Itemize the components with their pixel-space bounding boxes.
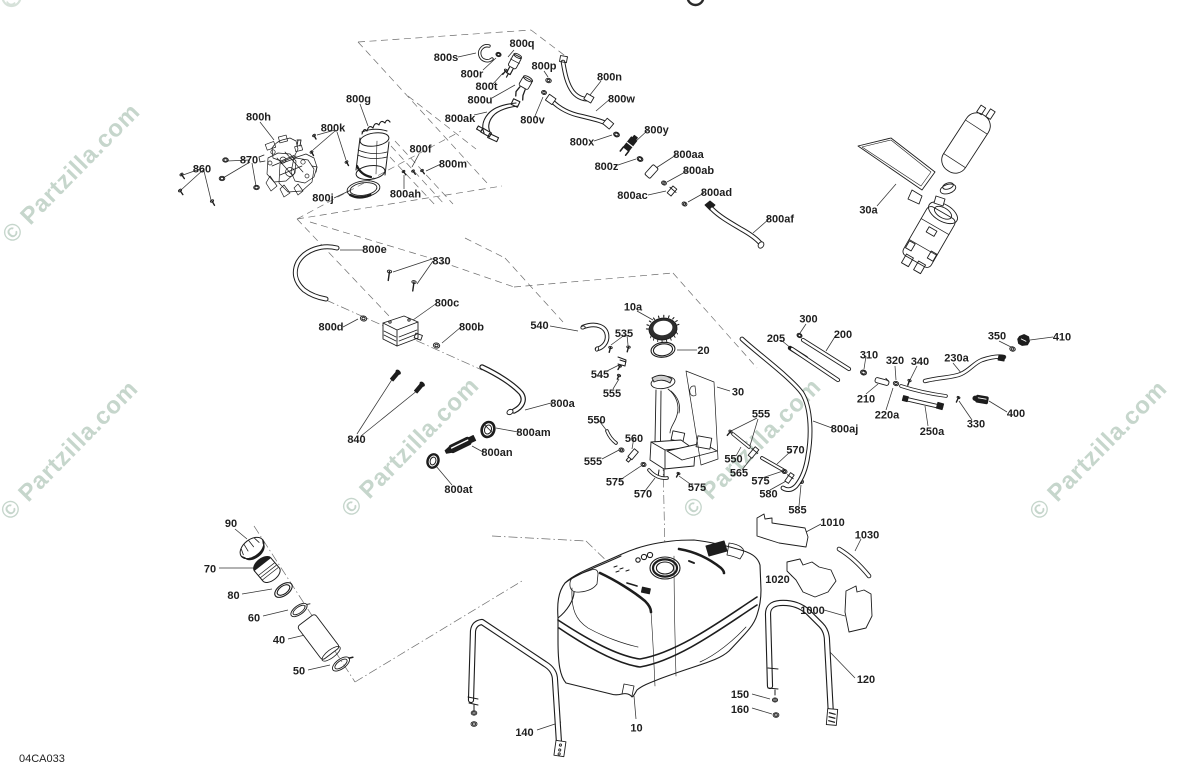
svg-text:800k: 800k bbox=[321, 123, 346, 135]
svg-text:10: 10 bbox=[630, 723, 642, 735]
svg-text:565: 565 bbox=[730, 468, 748, 480]
svg-text:800w: 800w bbox=[608, 94, 635, 106]
svg-text:800ad: 800ad bbox=[701, 187, 732, 199]
svg-text:800an: 800an bbox=[481, 447, 512, 459]
svg-text:545: 545 bbox=[591, 369, 609, 381]
svg-text:800x: 800x bbox=[570, 137, 595, 149]
svg-text:300: 300 bbox=[799, 314, 817, 326]
svg-text:160: 160 bbox=[731, 704, 749, 716]
svg-text:330: 330 bbox=[967, 419, 985, 431]
svg-text:350: 350 bbox=[988, 331, 1006, 343]
svg-text:800h: 800h bbox=[246, 112, 271, 124]
svg-text:575: 575 bbox=[606, 477, 624, 489]
svg-text:20: 20 bbox=[697, 345, 709, 357]
svg-text:120: 120 bbox=[857, 674, 875, 686]
svg-text:800v: 800v bbox=[520, 115, 545, 127]
svg-text:200: 200 bbox=[834, 329, 852, 341]
svg-text:800t: 800t bbox=[475, 81, 497, 93]
svg-text:60: 60 bbox=[248, 613, 260, 625]
svg-text:80: 80 bbox=[227, 590, 239, 602]
svg-text:150: 150 bbox=[731, 689, 749, 701]
svg-text:140: 140 bbox=[515, 727, 533, 739]
svg-text:10a: 10a bbox=[624, 302, 643, 314]
svg-text:220a: 220a bbox=[875, 410, 900, 422]
svg-text:800aj: 800aj bbox=[831, 424, 859, 436]
svg-text:800q: 800q bbox=[509, 38, 534, 50]
svg-text:04CA033: 04CA033 bbox=[19, 753, 65, 765]
svg-text:30: 30 bbox=[732, 387, 744, 399]
svg-text:870: 870 bbox=[240, 155, 258, 167]
svg-text:800f: 800f bbox=[409, 144, 431, 156]
svg-text:560: 560 bbox=[625, 433, 643, 445]
svg-text:800g: 800g bbox=[346, 94, 371, 106]
svg-text:1020: 1020 bbox=[765, 574, 789, 586]
svg-text:410: 410 bbox=[1053, 332, 1071, 344]
svg-text:1010: 1010 bbox=[820, 517, 844, 529]
svg-text:40: 40 bbox=[273, 635, 285, 647]
svg-text:1000: 1000 bbox=[800, 605, 824, 617]
svg-text:800ak: 800ak bbox=[445, 113, 476, 125]
svg-text:800m: 800m bbox=[439, 159, 467, 171]
svg-text:70: 70 bbox=[204, 564, 216, 576]
svg-text:800n: 800n bbox=[597, 72, 622, 84]
svg-text:210: 210 bbox=[857, 394, 875, 406]
svg-text:800ab: 800ab bbox=[683, 165, 714, 177]
svg-text:570: 570 bbox=[786, 445, 804, 457]
svg-text:90: 90 bbox=[225, 518, 237, 530]
svg-text:840: 840 bbox=[347, 434, 365, 446]
svg-text:800s: 800s bbox=[434, 52, 458, 64]
svg-text:575: 575 bbox=[751, 476, 769, 488]
svg-text:540: 540 bbox=[530, 320, 548, 332]
svg-text:250a: 250a bbox=[920, 426, 945, 438]
svg-text:310: 310 bbox=[860, 350, 878, 362]
svg-text:570: 570 bbox=[634, 489, 652, 501]
svg-text:555: 555 bbox=[752, 409, 770, 421]
svg-text:800r: 800r bbox=[461, 69, 484, 81]
svg-text:340: 340 bbox=[911, 356, 929, 368]
svg-text:800u: 800u bbox=[467, 95, 492, 107]
svg-text:800c: 800c bbox=[435, 298, 459, 310]
svg-text:800d: 800d bbox=[318, 322, 343, 334]
svg-text:800a: 800a bbox=[550, 398, 575, 410]
svg-text:800am: 800am bbox=[516, 427, 550, 439]
svg-text:550: 550 bbox=[724, 454, 742, 466]
svg-text:230a: 230a bbox=[944, 353, 969, 365]
svg-text:580: 580 bbox=[759, 489, 777, 501]
svg-text:1030: 1030 bbox=[855, 530, 879, 542]
svg-text:800e: 800e bbox=[362, 244, 386, 256]
svg-text:585: 585 bbox=[788, 505, 806, 517]
svg-text:800z: 800z bbox=[595, 161, 619, 173]
svg-text:800ah: 800ah bbox=[390, 189, 421, 201]
svg-text:535: 535 bbox=[615, 328, 633, 340]
svg-text:555: 555 bbox=[584, 456, 602, 468]
svg-text:830: 830 bbox=[432, 256, 450, 268]
svg-text:800j: 800j bbox=[312, 193, 333, 205]
svg-text:555: 555 bbox=[603, 388, 621, 400]
svg-text:550: 550 bbox=[587, 415, 605, 427]
svg-text:400: 400 bbox=[1007, 408, 1025, 420]
svg-text:800y: 800y bbox=[644, 125, 669, 137]
svg-text:800p: 800p bbox=[531, 61, 556, 73]
svg-text:800b: 800b bbox=[459, 322, 484, 334]
svg-text:30a: 30a bbox=[859, 205, 878, 217]
svg-text:800ac: 800ac bbox=[617, 190, 648, 202]
svg-text:320: 320 bbox=[886, 355, 904, 367]
svg-text:860: 860 bbox=[193, 164, 211, 176]
svg-text:575: 575 bbox=[688, 482, 706, 494]
svg-text:800af: 800af bbox=[766, 214, 794, 226]
svg-text:800at: 800at bbox=[444, 484, 472, 496]
svg-text:205: 205 bbox=[767, 333, 785, 345]
svg-text:800aa: 800aa bbox=[673, 149, 704, 161]
svg-text:50: 50 bbox=[293, 666, 305, 678]
